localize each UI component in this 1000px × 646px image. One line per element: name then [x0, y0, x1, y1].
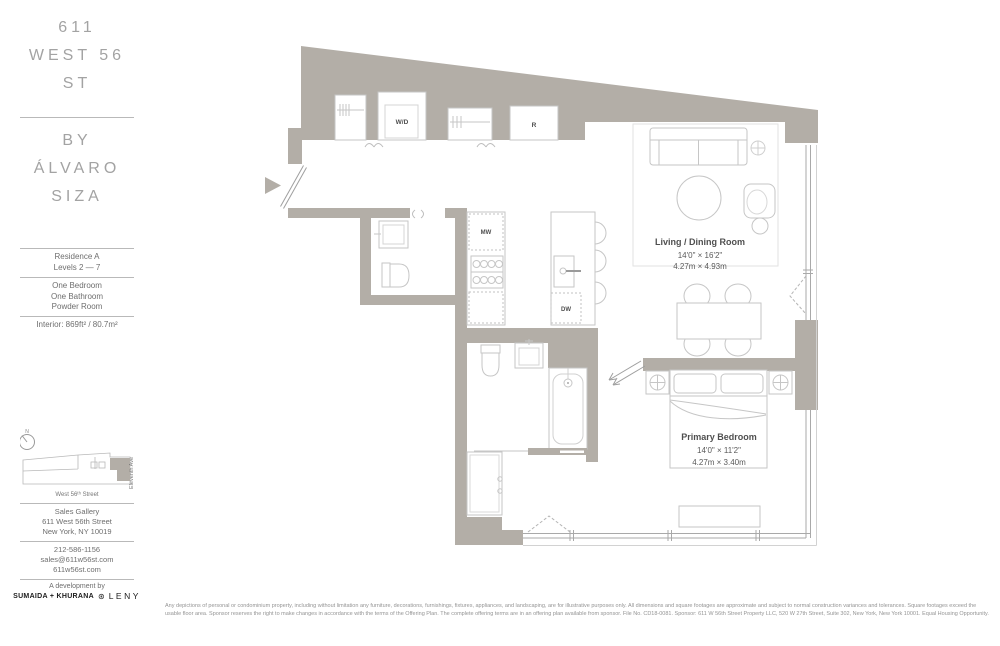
- gallery-line: 611 West 56th Street: [20, 517, 134, 527]
- living-room-dim-metric: 4.27m × 4.93m: [673, 262, 727, 271]
- kitchen-island: [551, 212, 606, 325]
- sumaida-khurana-logo: SUMAIDA + KHURANA: [13, 593, 94, 600]
- entry-arrow-icon: [265, 177, 281, 194]
- contact-block: 212-586-1156 sales@611w56st.com 611w56st…: [20, 545, 134, 575]
- bath-vanity: [515, 339, 543, 368]
- bedroom-dim-imperial: 14'0" × 11'2": [697, 446, 741, 455]
- dining-table: [677, 303, 761, 339]
- cabinet-swing-marks: [365, 144, 495, 148]
- ceiling-light-icon: [751, 141, 765, 155]
- leny-logo-icon: ⊛: [98, 592, 105, 601]
- email-address: sales@611w56st.com: [20, 555, 134, 565]
- powder-door-marks: [413, 210, 424, 218]
- bedroom-dim-metric: 4.27m × 3.40m: [692, 458, 746, 467]
- phone-number: 212-586-1156: [20, 545, 134, 555]
- powder-room: [374, 210, 424, 287]
- street-label: West 56ᵗʰ Street: [20, 492, 134, 498]
- divider: [20, 277, 134, 278]
- key-map: N: [20, 424, 134, 490]
- avenue-label: Eleventh Ave: [129, 441, 135, 489]
- building-title: 611 WEST 56 ST: [20, 14, 134, 98]
- divider: [20, 541, 134, 542]
- microwave-label: MW: [481, 230, 492, 236]
- divider: [20, 248, 134, 249]
- nightstand-right: [769, 371, 792, 394]
- armchair: [744, 184, 775, 218]
- architect-line: SIZA: [20, 183, 134, 211]
- bath-toilet: [481, 345, 500, 376]
- building-title-line: ST: [20, 70, 134, 98]
- dishwasher-label: DW: [561, 307, 571, 313]
- interior-area: Interior: 869ft² / 80.7m²: [20, 320, 134, 331]
- coffee-table: [677, 176, 721, 220]
- room-list-item: One Bathroom: [20, 292, 134, 303]
- washer-dryer: [378, 92, 426, 140]
- architect-title: BY ÁLVARO SIZA: [20, 127, 134, 211]
- bedroom-bench: [679, 506, 760, 527]
- development-by-label: A development by: [20, 583, 134, 590]
- bedroom-label: Primary Bedroom: [681, 432, 757, 442]
- legal-disclaimer: Any depictions of personal or condominiu…: [165, 603, 993, 618]
- washer-dryer-label: W/D: [396, 119, 409, 126]
- building-title-line: 611: [20, 14, 134, 42]
- nightstand-left: [646, 371, 669, 394]
- sofa: [650, 128, 747, 165]
- room-list-item: One Bedroom: [20, 281, 134, 292]
- floorplan-drawing: W/D R: [250, 20, 890, 580]
- room-list: One Bedroom One Bathroom Powder Room: [20, 281, 134, 313]
- living-room-dim-imperial: 14'0" × 16'2": [678, 251, 723, 260]
- refrigerator-label: R: [532, 122, 537, 129]
- residence-levels: Levels 2 — 7: [20, 263, 134, 274]
- sales-gallery-address: Sales Gallery 611 West 56th Street New Y…: [20, 507, 134, 537]
- residence-name: Residence A: [20, 252, 134, 263]
- island-stools: [595, 222, 606, 304]
- site-plan: [23, 453, 130, 484]
- bedroom-door-swing: [609, 361, 645, 385]
- leny-logo: LENY: [109, 591, 141, 601]
- building-title-line: WEST 56: [20, 42, 134, 70]
- architect-line: ÁLVARO: [20, 155, 134, 183]
- floorplan-flyer: 611 WEST 56 ST BY ÁLVARO SIZA Residence …: [0, 0, 1000, 646]
- architect-line: BY: [20, 127, 134, 155]
- divider: [20, 503, 134, 504]
- entry-closet: [335, 95, 366, 140]
- gallery-line: Sales Gallery: [20, 507, 134, 517]
- building-footprint: [110, 458, 130, 481]
- gallery-line: New York, NY 10019: [20, 527, 134, 537]
- bathtub: [549, 368, 587, 449]
- living-room-label: Living / Dining Room: [655, 237, 745, 247]
- side-table: [752, 218, 768, 234]
- divider: [20, 117, 134, 118]
- kitchen-counter: [467, 212, 505, 325]
- powder-toilet: [382, 263, 409, 287]
- sidebar: 611 WEST 56 ST BY ÁLVARO SIZA Residence …: [20, 0, 134, 646]
- dining-set: [677, 284, 761, 356]
- developer-logos: SUMAIDA + KHURANA ⊛ LENY: [20, 591, 134, 601]
- website-url: 611w56st.com: [20, 565, 134, 575]
- entry: [265, 166, 307, 209]
- divider: [20, 579, 134, 580]
- entry-door: [281, 166, 307, 209]
- shower: [467, 452, 502, 515]
- residence-info: Residence A Levels 2 — 7: [20, 252, 134, 273]
- hall-closet: [448, 108, 492, 140]
- room-list-item: Powder Room: [20, 302, 134, 313]
- compass-icon: N: [20, 429, 35, 450]
- divider: [20, 316, 134, 317]
- powder-sink: [374, 221, 408, 248]
